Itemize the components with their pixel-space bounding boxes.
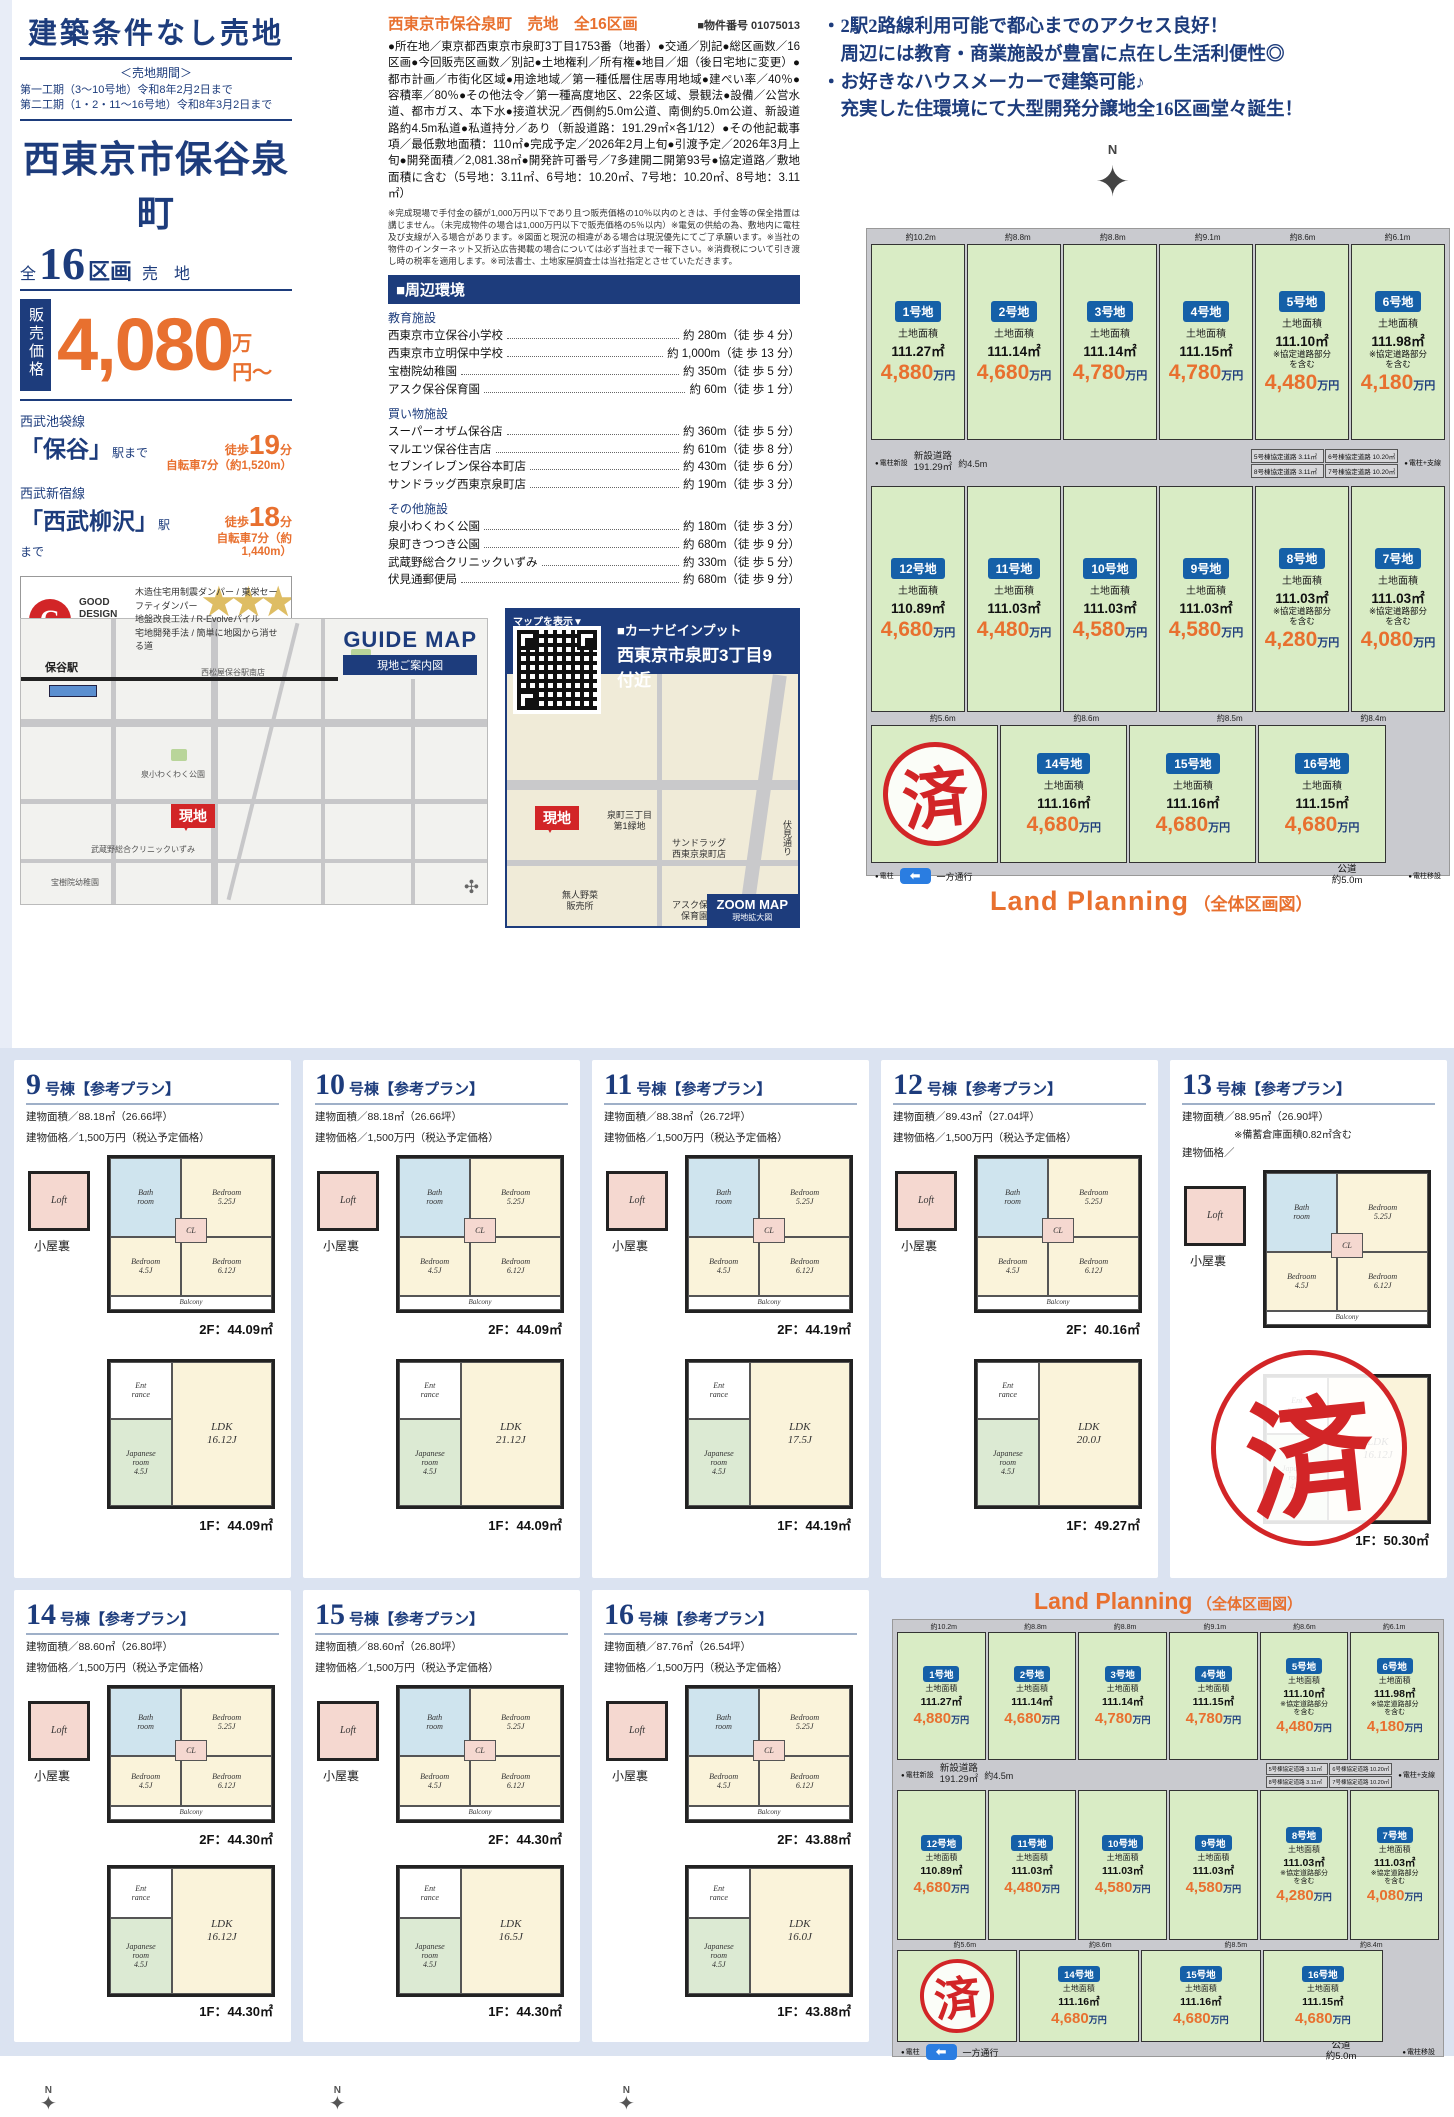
plot-area: 111.03㎡ [1193,1863,1234,1878]
bedroom: Bedroom 6.12J [1337,1252,1428,1311]
plot-name: 16号地 [1295,753,1348,774]
plan-building-area: 建物面積／87.76㎡（26.54坪） [604,1640,857,1656]
loft-room: Loft [1184,1186,1246,1246]
land-planning-title: Land Planning （全体区画図） [990,886,1312,917]
property-title: 西東京市保谷泉町 売地 全16区画 [388,12,638,34]
dimension-label: 約8.6m [1293,1622,1316,1632]
plan-building-price: 建物価格／ [1182,1146,1435,1162]
plot-area: 111.15㎡ [1179,340,1232,360]
plan-header: 13 号棟【参考プラン】 [1182,1070,1435,1105]
floor-plan: Loft 小屋裏 Bath room Bedroom 5.25J Bedroom… [26,1153,279,1653]
compass-star-icon: ✦ [1095,157,1130,206]
leader-dots [484,392,685,393]
plot-cell: 16号地土地面積111.15㎡4,680万円 [1263,1950,1383,2042]
dimension-label: 約5.6m [930,713,956,724]
bath-room: Bath room [688,1158,759,1237]
plan-card: 11 号棟【参考プラン】 建物面積／88.38㎡（26.72坪） 建物価格／1,… [592,1060,869,1578]
plot-cell: 7号地土地面積111.03㎡※協定道路部分 を含む4,080万円 [1351,486,1445,712]
balcony: Balcony [688,1296,850,1310]
utility-pole-label: 電柱新設 [901,1770,934,1780]
plot-note: ※協定道路部分 を含む [1273,350,1331,370]
map-label: 泉小わくわく公園 [141,769,205,780]
lots-count-line: 全 16 区画 売 地 [20,241,292,291]
plot-area-label: 土地面積 [1378,315,1418,330]
plot-note: ※協定道路部分 を含む [1371,1870,1419,1886]
bedroom: Bedroom 4.5J [399,1756,470,1805]
plot-area: 111.16㎡ [1180,1994,1221,2009]
plan-building-price: 建物価格／1,500万円（税込予定価格） [315,1661,568,1677]
plot-area-label: 土地面積 [898,325,938,340]
bedroom: Bedroom 4.5J [399,1237,470,1296]
plot-price: 4,080万円 [1361,629,1436,650]
loft-caption: 小屋裏 [34,1237,70,1254]
floor-plan-1f: Ent rance LDK 16.12J Japanese room 4.5J [107,1865,275,1997]
plot-name: 16号地 [1302,1966,1344,1982]
plot-price: 4,580万円 [1073,619,1148,640]
utility-pole-label: 電柱+支線 [1398,1770,1435,1780]
loft-caption: 小屋裏 [612,1237,648,1254]
map-label: 西松屋保谷駅南店 [201,667,265,678]
facility-row: 泉町きつつき公園約 680m（徒 歩 9 分） [388,537,800,555]
map-label: 無人野菜 販売所 [562,890,598,912]
plot-price: 4,680万円 [1004,1711,1060,1726]
plot-cell: 15号地土地面積111.16㎡4,680万円 [1129,725,1256,863]
plan-card: 13 号棟【参考プラン】 建物面積／88.95㎡（26.90坪） ※備蓄倉庫面積… [1170,1060,1447,1578]
plot-area: 111.27㎡ [921,1694,962,1709]
leader-dots [507,338,679,339]
plot-area: 111.03㎡ [1275,587,1328,607]
award-items: 木造住宅用制震ダンパー / 東栄セーフティダンパー 地盤改良工法 / R-Evo… [135,586,283,654]
floor-plan-2f: Bath room Bedroom 5.25J Bedroom 4.5J Bed… [107,1685,275,1823]
price-unit: 万円〜 [232,327,292,385]
floor-plan-2f: Bath room Bedroom 5.25J Bedroom 4.5J Bed… [396,1685,564,1823]
city-name: 西東京市保谷泉町 [20,129,292,237]
plan-header: 16 号棟【参考プラン】 [604,1600,857,1635]
bottom-land-planning: Land Planning （全体区画図） 約10.2m約8.8m約8.8m約9… [892,1588,1444,2057]
loft-room: Loft [317,1171,379,1231]
qr-code [513,626,601,714]
one-way: ⬅一方通行 [900,868,973,884]
floor-plan-2f: Bath room Bedroom 5.25J Bedroom 4.5J Bed… [107,1155,275,1313]
plan-number: 15 [315,1600,345,1630]
plot-name: 3号地 [1105,1666,1141,1682]
plot-price: 4,680万円 [881,619,956,640]
leader-dots [484,529,679,530]
floor-area-1f: 1F：44.09㎡ [488,1515,562,1534]
plot-area: 111.03㎡ [1179,597,1232,617]
plot-name: 5号地 [1286,1658,1322,1674]
plan-card: 14 号棟【参考プラン】 建物面積／88.60㎡（26.80坪） 建物価格／1,… [14,1590,291,2042]
plot-area-label: 土地面積 [898,582,938,597]
dimension-label: 約9.1m [1195,232,1221,243]
plot-name: 3号地 [1087,301,1134,322]
floor-area-2f: 2F：44.09㎡ [488,1319,562,1338]
plots-row-3: 済14号地土地面積111.16㎡4,680万円15号地土地面積111.16㎡4,… [897,1950,1439,2042]
facility-row: サンドラッグ西東京泉町店約 190m（徒 歩 3 分） [388,477,800,495]
plot-name: 7号地 [1377,1827,1413,1843]
bottom-dimensions: 約5.6m約8.6m約8.5m約8.4m [897,1940,1439,1950]
leader-dots [496,452,680,453]
plots-row-1: 1号地土地面積111.27㎡4,880万円2号地土地面積111.14㎡4,680… [871,244,1445,440]
floor-plan: Loft 小屋裏 Bath room Bedroom 5.25J Bedroom… [26,1683,279,2117]
utility-pole-label: 電柱新設 [875,458,908,468]
plot-name: 10号地 [1083,558,1136,579]
plan-card: 16 号棟【参考プラン】 建物面積／87.76㎡（26.54坪） 建物価格／1,… [592,1590,869,2042]
plot-price: 4,180万円 [1361,372,1436,393]
leader-dots [542,565,680,566]
plan-header: 10 号棟【参考プラン】 [315,1070,568,1105]
rail-access-item: 西武新宿線「西武柳沢」駅まで徒歩18分自転車7分（約1,440m） [20,483,292,562]
facility-name: マルエツ保谷住吉店 [388,442,492,460]
sold-stamp: 済 [916,1955,997,2036]
plot-cell: 9号地土地面積111.03㎡4,580万円 [1169,1790,1258,1940]
plot-cell: 15号地土地面積111.16㎡4,680万円 [1141,1950,1261,2042]
plot-name: 2号地 [1014,1666,1050,1682]
plot-area-label: 土地面積 [1379,1675,1411,1686]
kyotei-road-label: 6号棟協定道路 10.20㎡ [1329,1763,1392,1775]
facility-distance: 約 1,000m（徒 歩 13 分） [667,346,800,364]
bath-room: Bath room [110,1688,181,1757]
plot-area-label: 土地面積 [1063,1983,1095,1994]
facility-row: 武蔵野総合クリニックいずみ約 330m（徒 歩 5 分） [388,555,800,573]
facility-distance: 約 280m（徒 歩 4 分） [683,328,800,346]
leader-dots [461,374,679,375]
dimension-label: 約10.2m [906,232,936,243]
floor-plan: Loft 小屋裏 Bath room Bedroom 5.25J Bedroom… [604,1683,857,2117]
plan-header: 11 号棟【参考プラン】 [604,1070,857,1105]
plot-area: 111.15㎡ [1295,792,1348,812]
plot-area-label: 土地面積 [1282,315,1322,330]
ldk-room: LDK 17.5J [750,1362,850,1506]
plan-number: 12 [893,1070,923,1100]
plot-area-label: 土地面積 [925,1852,957,1863]
floor-area-2f: 2F：44.09㎡ [199,1319,273,1338]
new-road-label: 新設道路 191.29㎡ [914,452,953,474]
dimension-label: 約8.5m [1217,713,1243,724]
plot-name: 1号地 [923,1666,959,1682]
plot-cell: 2号地土地面積111.14㎡4,680万円 [967,244,1061,440]
kyotei-road-label: 5号棟協定道路 3.11㎡ [1251,449,1324,463]
plot-name: 11号地 [988,558,1041,579]
floor-area-1f: 1F：44.30㎡ [199,2001,273,2020]
plot-cell: 14号地土地面積111.16㎡4,680万円 [1000,725,1127,863]
dimension-label: 約8.4m [1360,713,1386,724]
plot-cell: 済 [871,725,998,863]
plot-cell: 7号地土地面積111.03㎡※協定道路部分 を含む4,080万円 [1350,1790,1439,1940]
plot-name: 15号地 [1180,1966,1222,1982]
kyotei-road-label: 7号棟協定道路 10.20㎡ [1325,464,1398,478]
plot-name: 9号地 [1195,1835,1231,1851]
kyotei-roads: 5号棟協定道路 3.11㎡6号棟協定道路 10.20㎡8号棟協定道路 3.11㎡… [1266,1763,1393,1788]
facility-distance: 約 430m（徒 歩 6 分） [683,459,800,477]
plot-area: 111.27㎡ [891,340,944,360]
plots-row-1: 1号地土地面積111.27㎡4,880万円2号地土地面積111.14㎡4,680… [897,1632,1439,1760]
floor-area-1f: 1F：49.27㎡ [1066,1515,1140,1534]
facility-distance: 約 680m（徒 歩 9 分） [683,572,800,590]
plot-cell: 1号地土地面積111.27㎡4,880万円 [897,1632,986,1760]
ldk-room: LDK 16.0J [750,1868,850,1994]
facility-name: 泉小わくわく公園 [388,519,480,537]
plot-name: 7号地 [1375,548,1422,569]
closet: CL [1331,1233,1363,1257]
plan-number: 10 [315,1070,345,1100]
facility-row: 西東京市立明保中学校約 1,000m（徒 歩 13 分） [388,346,800,364]
compass-icon: ✣ [464,877,479,898]
plot-area: 111.16㎡ [1166,792,1219,812]
loft-caption: 小屋裏 [34,1767,70,1784]
facility-name: 西東京市立保谷小学校 [388,328,503,346]
kyotei-roads: 5号棟協定道路 3.11㎡6号棟協定道路 10.20㎡8号棟協定道路 3.11㎡… [1251,449,1398,478]
plan-card: 15 号棟【参考プラン】 建物面積／88.60㎡（26.80坪） 建物価格／1,… [303,1590,580,2042]
plot-name: 9号地 [1183,558,1230,579]
plot-area: 111.03㎡ [1374,1855,1415,1870]
plan-card: 9 号棟【参考プラン】 建物面積／88.18㎡（26.66坪） 建物価格／1,5… [14,1060,291,1578]
entrance: Ent rance [977,1362,1039,1420]
plan-building-area: 建物面積／88.38㎡（26.72坪） [604,1110,857,1126]
floor-area-1f: 1F：44.19㎡ [777,1515,851,1534]
bedroom: Bedroom 4.5J [1266,1252,1337,1311]
plot-area: 111.14㎡ [1102,1694,1143,1709]
plot-area-label: 土地面積 [1186,582,1226,597]
loft-room: Loft [28,1171,90,1231]
plot-cell: 8号地土地面積111.03㎡※協定道路部分 を含む4,280万円 [1260,1790,1349,1940]
plot-cell: 12号地土地面積110.89㎡4,680万円 [897,1790,986,1940]
balcony: Balcony [110,1296,272,1310]
ldk-room: LDK 16.5J [461,1868,561,1994]
plan-building-area: 建物面積／88.18㎡（26.66坪） [26,1110,279,1126]
plot-name: 1号地 [895,301,942,322]
facility-distance: 約 60m（徒 歩 1 分） [689,382,800,400]
plot-area: 111.98㎡ [1371,330,1424,350]
guide-map-title: GUIDE MAP 現地ご案内図 [343,627,477,675]
floor-plan: Loft 小屋裏 Bath room Bedroom 5.25J Bedroom… [315,1683,568,2117]
dimension-label: 約8.8m [1005,232,1031,243]
entrance: Ent rance [688,1868,750,1918]
closet: CL [175,1218,207,1242]
dimension-label: 約8.6m [1089,1940,1112,1950]
plot-price: 4,680万円 [914,1880,970,1895]
dimension-label: 約8.5m [1224,1940,1247,1950]
plan-header: 12 号棟【参考プラン】 [893,1070,1146,1105]
facility-distance: 約 680m（徒 歩 9 分） [683,537,800,555]
left-column: 建築条件なし売地 ＜売地期間＞ 第一工期（3〜10号地）令和8年2月2日まで 第… [20,10,292,664]
lots-kukaku: 区画 [88,254,132,286]
plot-cell: 3号地土地面積111.14㎡4,780万円 [1078,1632,1167,1760]
loft-room: Loft [606,1171,668,1231]
new-road: 電柱新設新設道路 191.29㎡約4.5m5号棟協定道路 3.11㎡6号棟協定道… [871,440,1445,486]
plot-cell: 9号地土地面積111.03㎡4,580万円 [1159,486,1253,712]
plots-row-3: 済14号地土地面積111.16㎡4,680万円15号地土地面積111.16㎡4,… [871,725,1445,863]
plan-title: 号棟【参考プラン】 [60,1608,195,1629]
map-label: 伏見通り [781,820,792,856]
plot-area-label: 土地面積 [994,582,1034,597]
map-label: 泉町三丁目 第1緑地 [607,810,652,832]
plot-note: ※協定道路部分 を含む [1369,607,1427,627]
guide-map: 保谷駅 GUIDE MAP 現地ご案内図 泉小わくわく公園 武蔵野総合クリニック… [20,618,488,905]
station-name: 「保谷」駅まで [20,430,148,464]
facility-distance: 約 610m（徒 歩 8 分） [683,442,800,460]
facility-name: サンドラッグ西東京泉町店 [388,477,526,495]
closet: CL [753,1740,785,1761]
plot-price: 4,180万円 [1367,1719,1423,1734]
plot-area-label: 土地面積 [1090,582,1130,597]
floor-plan: Loft 小屋裏 Bath room Bedroom 5.25J Bedroom… [893,1153,1146,1653]
dimension-label: 約8.4m [1360,1940,1383,1950]
rail-access-item: 西武池袋線「保谷」駅まで徒歩19分自転車7分（約1,520m） [20,411,292,473]
one-way-sign-icon: ⬅ [900,868,931,884]
facility-distance: 約 360m（徒 歩 5 分） [683,424,800,442]
dimension-label: 約8.8m [1114,1622,1137,1632]
bedroom: Bedroom 4.5J [110,1237,181,1296]
plot-name: 8号地 [1286,1827,1322,1843]
plot-area-label: 土地面積 [1288,1675,1320,1686]
plot-price: 4,580万円 [1169,619,1244,640]
plot-price: 4,580万円 [1186,1880,1242,1895]
plot-price: 4,280万円 [1276,1888,1332,1903]
leader-dots [530,469,679,470]
floor-plan-1f: Ent rance LDK 20.0J Japanese room 4.5J [974,1359,1142,1509]
floor-area-2f: 2F：43.88㎡ [777,1829,851,1848]
surroundings-banner: ■周辺環境 [388,275,800,304]
facility-name: スーパーオザム保谷店 [388,424,503,442]
plot-price: 4,080万円 [1367,1888,1423,1903]
plot-name: 10号地 [1102,1835,1144,1851]
map-label: 宝樹院幼稚園 [51,877,99,888]
japanese-room: Japanese room 4.5J [688,1419,750,1505]
facility-name: セブンイレブン保谷本町店 [388,459,526,477]
japanese-room: Japanese room 4.5J [110,1918,172,1994]
plans-row-1: 9 号棟【参考プラン】 建物面積／88.18㎡（26.66坪） 建物価格／1,5… [14,1060,1447,1578]
facility-name: 泉町きつつき公園 [388,537,480,555]
plot-price: 4,680万円 [1285,814,1360,835]
property-details: ●所在地／東京都西東京市泉町3丁目1753番（地番）●交通／別記●総区画数／16… [388,39,800,202]
plan-number: 14 [26,1600,56,1630]
floor-area-1f: 1F：44.09㎡ [199,1515,273,1534]
hoya-station-marker [49,685,97,697]
plot-price: 4,580万円 [1095,1880,1151,1895]
plot-cell: 3号地土地面積111.14㎡4,780万円 [1063,244,1157,440]
facility-row: 伏見通郵便局約 680m（徒 歩 9 分） [388,572,800,590]
plots-row-2: 12号地土地面積110.89㎡4,680万円11号地土地面積111.03㎡4,4… [871,486,1445,712]
compass-icon: N✦ [618,2086,635,2113]
bike-minutes: 自転車7分（約1,520m） [166,460,292,473]
plan-building-area: 建物面積／89.43㎡（27.04坪） [893,1110,1146,1126]
ldk-room: LDK 21.12J [461,1362,561,1506]
floor-plan-1f: Ent rance LDK 17.5J Japanese room 4.5J [685,1359,853,1509]
plan-building-price: 建物価格／1,500万円（税込予定価格） [315,1131,568,1147]
plot-price: 4,780万円 [1073,362,1148,383]
facility-category: 教育施設 [388,309,800,326]
plan-title: 号棟【参考プラン】 [349,1608,484,1629]
one-way: ⬅一方通行 [926,2044,999,2060]
plot-cell: 14号地土地面積111.16㎡4,680万円 [1019,1950,1139,2042]
plan-title: 号棟【参考プラン】 [349,1078,484,1099]
map-label: 武蔵野総合クリニックいずみ [91,844,195,855]
plot-cell: 8号地土地面積111.03㎡※協定道路部分 を含む4,280万円 [1255,486,1349,712]
plot-price: 4,480万円 [1276,1719,1332,1734]
entrance: Ent rance [399,1868,461,1918]
bedroom: Bedroom 6.12J [470,1237,561,1296]
entrance: Ent rance [110,1868,172,1918]
bath-room: Bath room [1266,1173,1337,1252]
plan-building-price: 建物価格／1,500万円（税込予定価格） [26,1131,279,1147]
dimension-label: 約8.8m [1100,232,1126,243]
facility-row: 宝樹院幼稚園約 350m（徒 歩 5 分） [388,364,800,382]
one-way-label: 一方通行 [963,2046,999,2059]
plot-note: ※協定道路部分 を含む [1371,1701,1419,1717]
balcony: Balcony [688,1806,850,1820]
balcony: Balcony [399,1806,561,1820]
plot-name: 5号地 [1279,291,1326,312]
dimension-label: 約10.2m [931,1622,957,1632]
closet: CL [1042,1218,1074,1242]
price-value: 4,080 [57,308,232,382]
road-width-label: 約4.5m [984,1769,1013,1782]
kyotei-road-label: 7号棟協定道路 10.20㎡ [1329,1776,1392,1788]
closet: CL [753,1218,785,1242]
floor-area-1f: 1F：43.88㎡ [777,2001,851,2020]
bath-room: Bath room [688,1688,759,1757]
lots-urichi: 売 地 [142,260,196,284]
plot-cell: 6号地土地面積111.98㎡※協定道路部分 を含む4,180万円 [1350,1632,1439,1760]
plan-building-area: 建物面積／88.18㎡（26.66坪） [315,1110,568,1126]
price-label: 販売価格 [20,299,51,391]
plot-area: 111.15㎡ [1302,1994,1343,2009]
bedroom: Bedroom 6.12J [759,1237,850,1296]
facility-row: セブンイレブン保谷本町店約 430m（徒 歩 6 分） [388,459,800,477]
plan-header: 14 号棟【参考プラン】 [26,1600,279,1635]
plot-cell: 6号地土地面積111.98㎡※協定道路部分 を含む4,180万円 [1351,244,1445,440]
plots-row-2: 12号地土地面積110.89㎡4,680万円11号地土地面積111.03㎡4,4… [897,1790,1439,1940]
site-marker: 現地 [171,804,215,828]
leader-dots [484,547,679,548]
plot-area: 111.15㎡ [1193,1694,1234,1709]
bottom-dimensions: 約5.6m約8.6m約8.5m約8.4m [871,712,1445,725]
floor-plan-2f: Bath room Bedroom 5.25J Bedroom 4.5J Bed… [396,1155,564,1313]
plot-area-label: 土地面積 [1197,1852,1229,1863]
plot-area: 110.89㎡ [920,1863,962,1878]
walk-minutes: 徒歩19分 [166,430,292,461]
plot-cell: 10号地土地面積111.03㎡4,580万円 [1078,1790,1167,1940]
plot-area-label: 土地面積 [1173,777,1213,792]
bath-room: Bath room [399,1158,470,1237]
plot-cell: 12号地土地面積110.89㎡4,680万円 [871,486,965,712]
plot-price: 4,680万円 [1026,814,1101,835]
loft-room: Loft [28,1701,90,1761]
rail-row: 「西武柳沢」駅まで徒歩18分自転車7分（約1,440m） [20,502,292,562]
japanese-room: Japanese room 4.5J [977,1419,1039,1505]
plot-note: ※協定道路部分 を含む [1273,607,1331,627]
loft-room: Loft [606,1701,668,1761]
middle-column: 西東京市保谷泉町 売地 全16区画 ■物件番号 01075013 ●所在地／東京… [388,12,800,590]
japanese-room: Japanese room 4.5J [110,1419,172,1505]
floor-plan-1f: Ent rance LDK 16.0J Japanese room 4.5J [685,1865,853,1997]
public-road-label: 公道 約5.0m [1326,2041,1357,2063]
plot-price: 4,880万円 [881,362,956,383]
plan-building-area: 建物面積／88.60㎡（26.80坪） [26,1640,279,1656]
plan-title: 号棟【参考プラン】 [45,1078,180,1099]
plot-cell: 11号地土地面積111.03㎡4,480万円 [967,486,1061,712]
bedroom: Bedroom 6.12J [181,1756,272,1805]
facility-category: 買い物施設 [388,405,800,422]
plot-name: 4号地 [1195,1666,1231,1682]
plot-area: 111.03㎡ [1083,597,1136,617]
plot-area: 111.03㎡ [1283,1855,1324,1870]
site-marker: 現地 [535,806,579,830]
compass-icon: N✦ [40,2086,57,2113]
rail-line [21,677,338,681]
bedroom: Bedroom 4.5J [688,1237,759,1296]
